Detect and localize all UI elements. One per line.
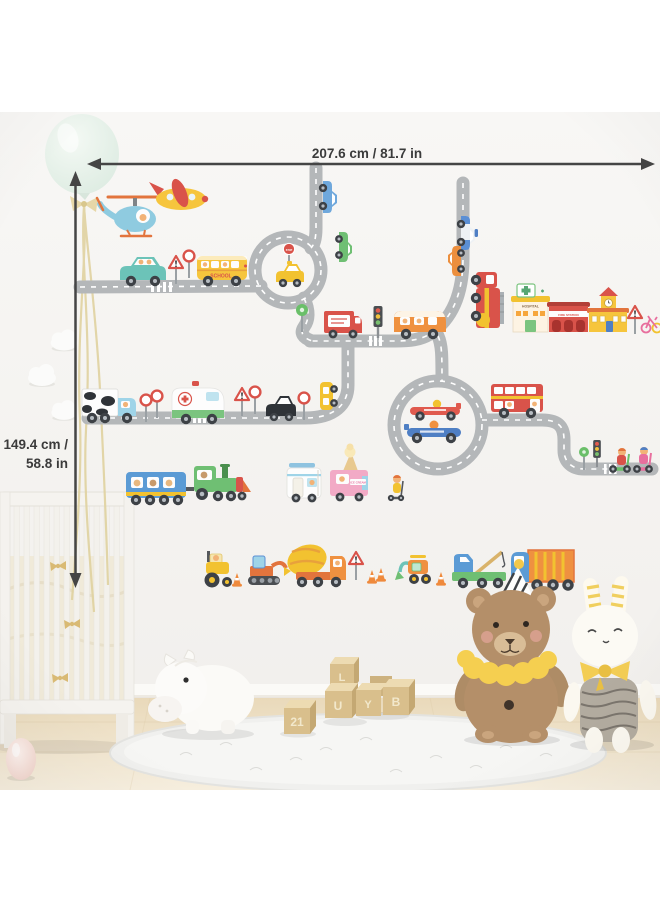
photo-vignette — [0, 112, 660, 790]
photo-canvas: SCHOOL STOP — [0, 0, 660, 900]
nursery-wall-sticker-product-photo: SCHOOL STOP — [0, 0, 660, 900]
